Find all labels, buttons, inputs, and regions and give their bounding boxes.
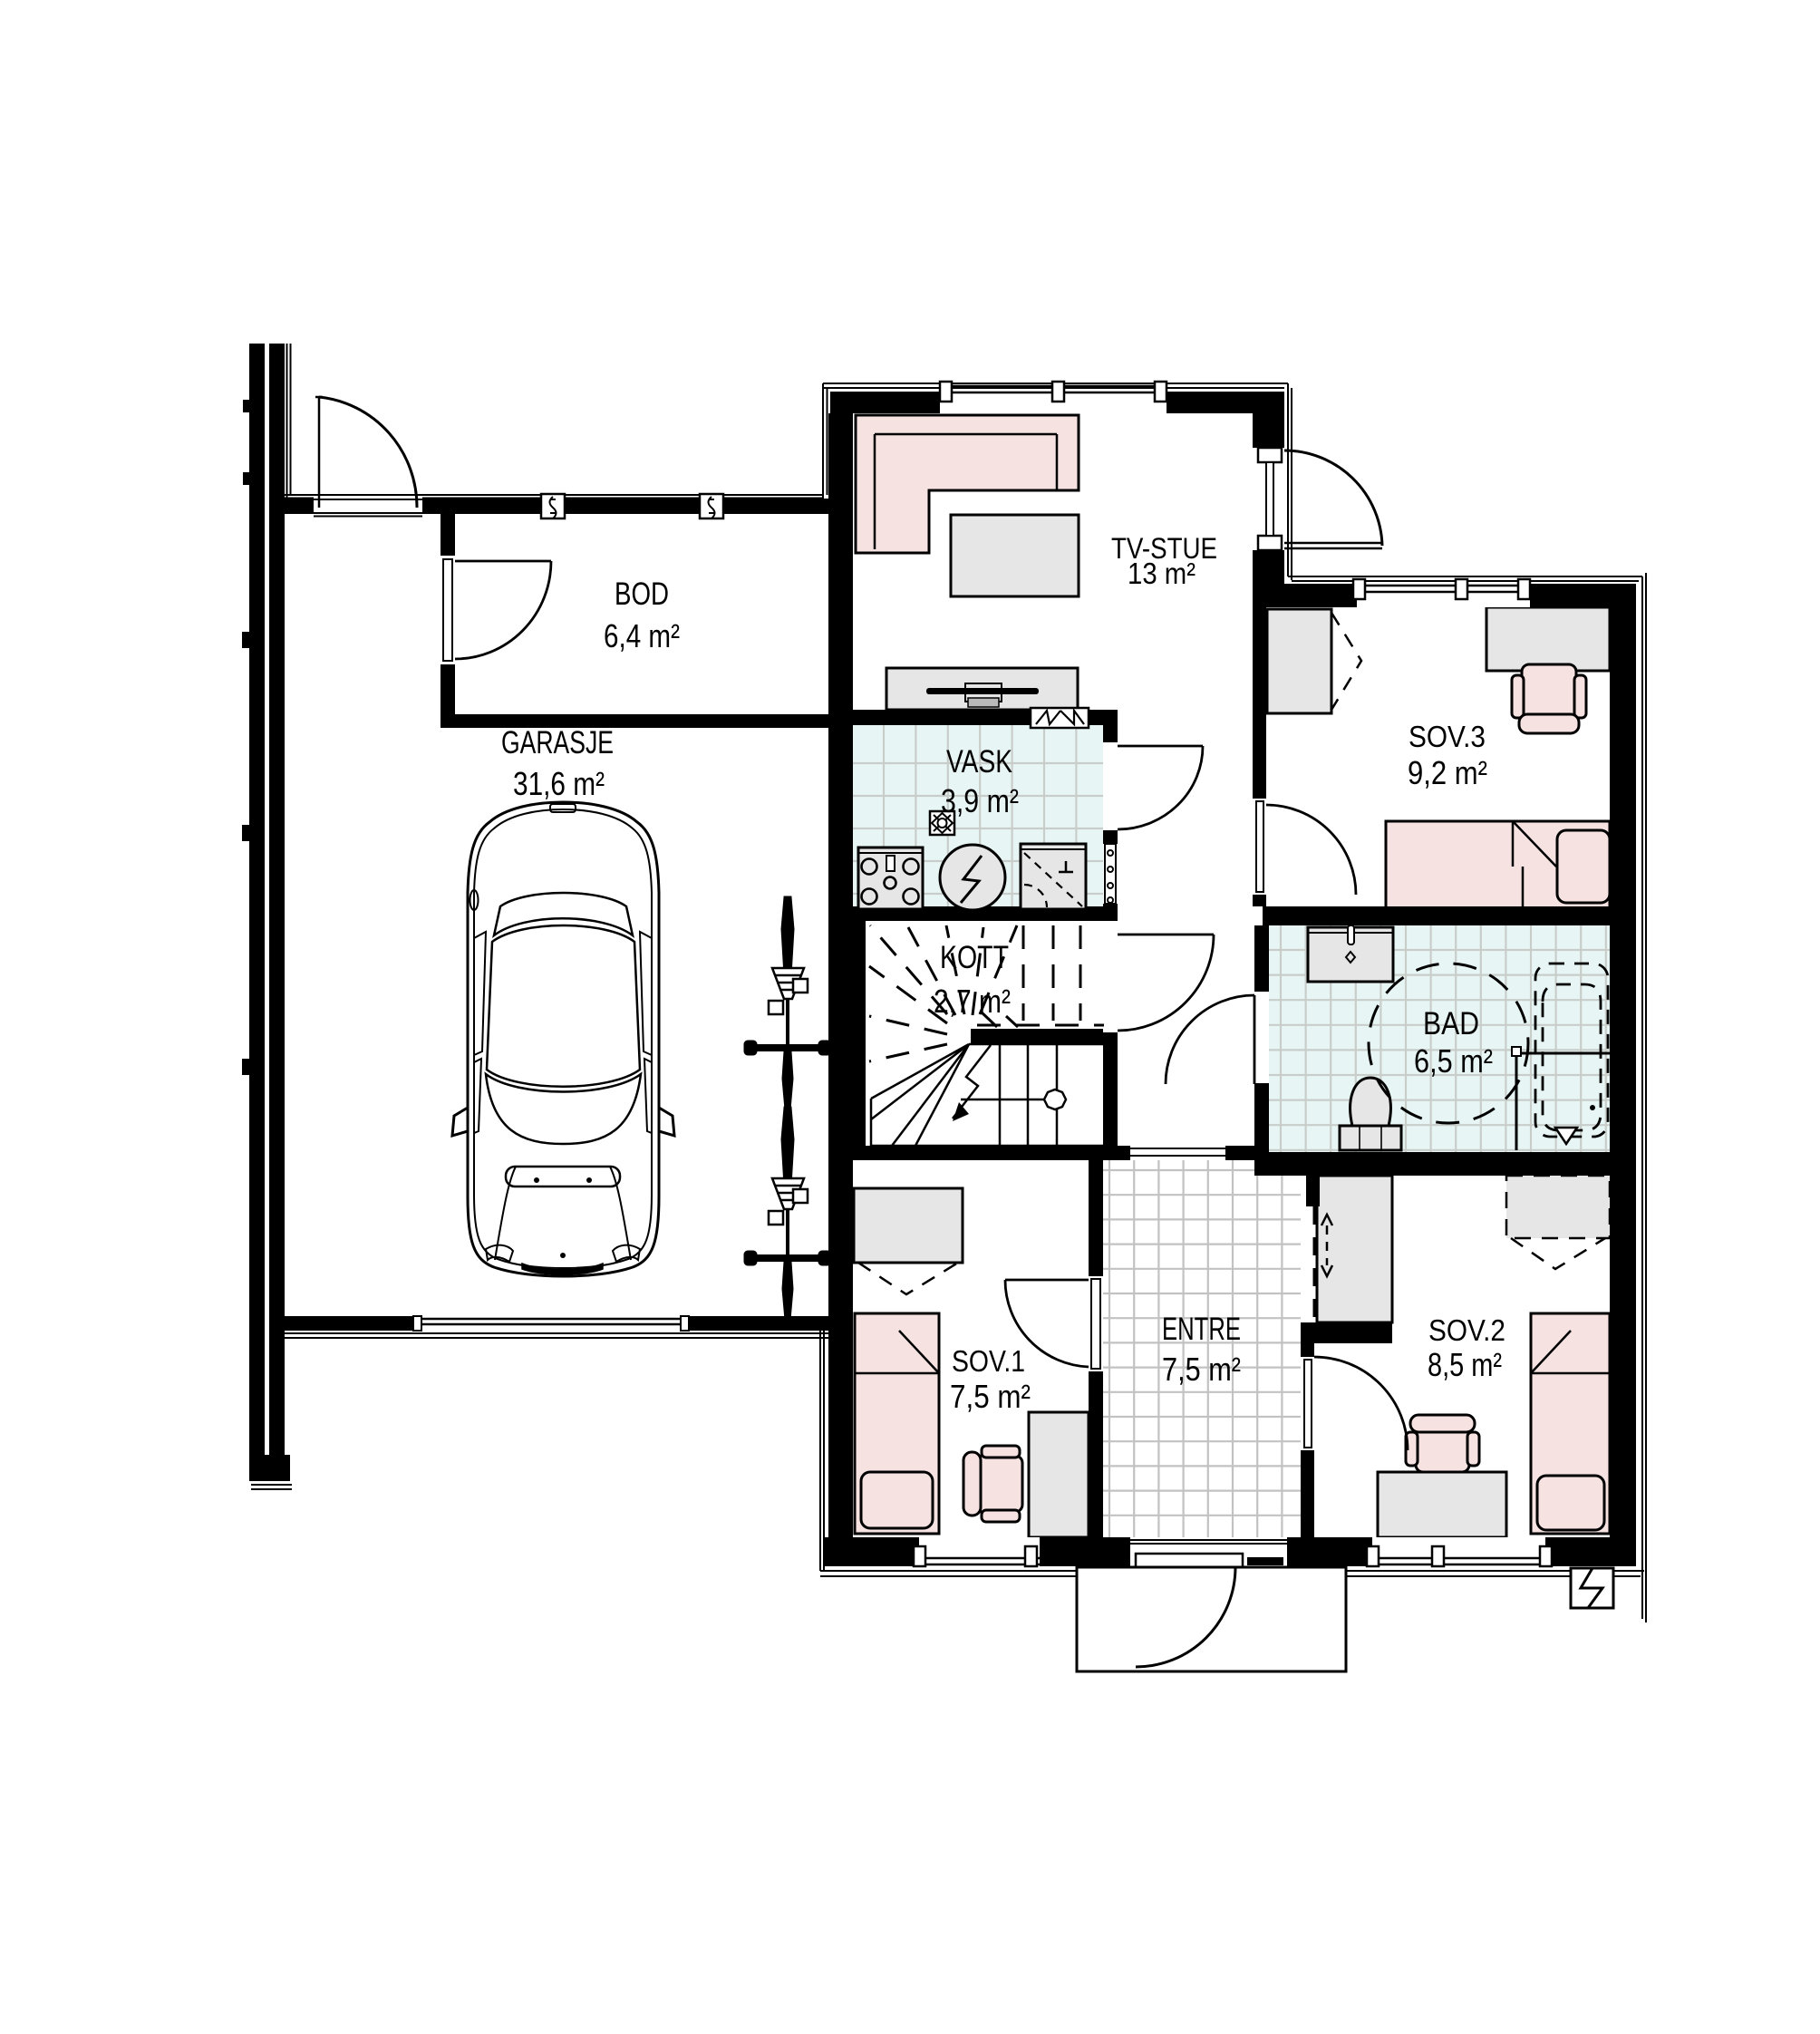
svg-text:SOV.2: SOV.2 bbox=[1428, 1313, 1505, 1347]
svg-text:31,6 m²: 31,6 m² bbox=[513, 765, 605, 802]
svg-text:BOD: BOD bbox=[615, 576, 669, 612]
svg-text:7,5 m²: 7,5 m² bbox=[950, 1378, 1031, 1415]
svg-text:GARASJE: GARASJE bbox=[501, 725, 614, 760]
svg-text:BAD: BAD bbox=[1423, 1006, 1479, 1041]
svg-text:VASK: VASK bbox=[946, 744, 1012, 780]
svg-text:6,5 m²: 6,5 m² bbox=[1414, 1042, 1493, 1080]
svg-text:ENTRE: ENTRE bbox=[1162, 1312, 1241, 1347]
svg-text:8,5 m²: 8,5 m² bbox=[1428, 1346, 1502, 1383]
svg-text:9,2 m²: 9,2 m² bbox=[1408, 754, 1487, 791]
svg-text:6,4 m²: 6,4 m² bbox=[604, 617, 680, 654]
svg-text:KOTT: KOTT bbox=[940, 940, 1009, 975]
svg-text:2,7 m²: 2,7 m² bbox=[934, 983, 1011, 1020]
svg-text:3,9 m²: 3,9 m² bbox=[941, 782, 1019, 819]
svg-text:SOV.3: SOV.3 bbox=[1409, 720, 1486, 753]
svg-text:13 m²: 13 m² bbox=[1128, 557, 1196, 590]
svg-text:7,5 m²: 7,5 m² bbox=[1162, 1351, 1241, 1388]
svg-text:SOV.1: SOV.1 bbox=[952, 1344, 1025, 1378]
